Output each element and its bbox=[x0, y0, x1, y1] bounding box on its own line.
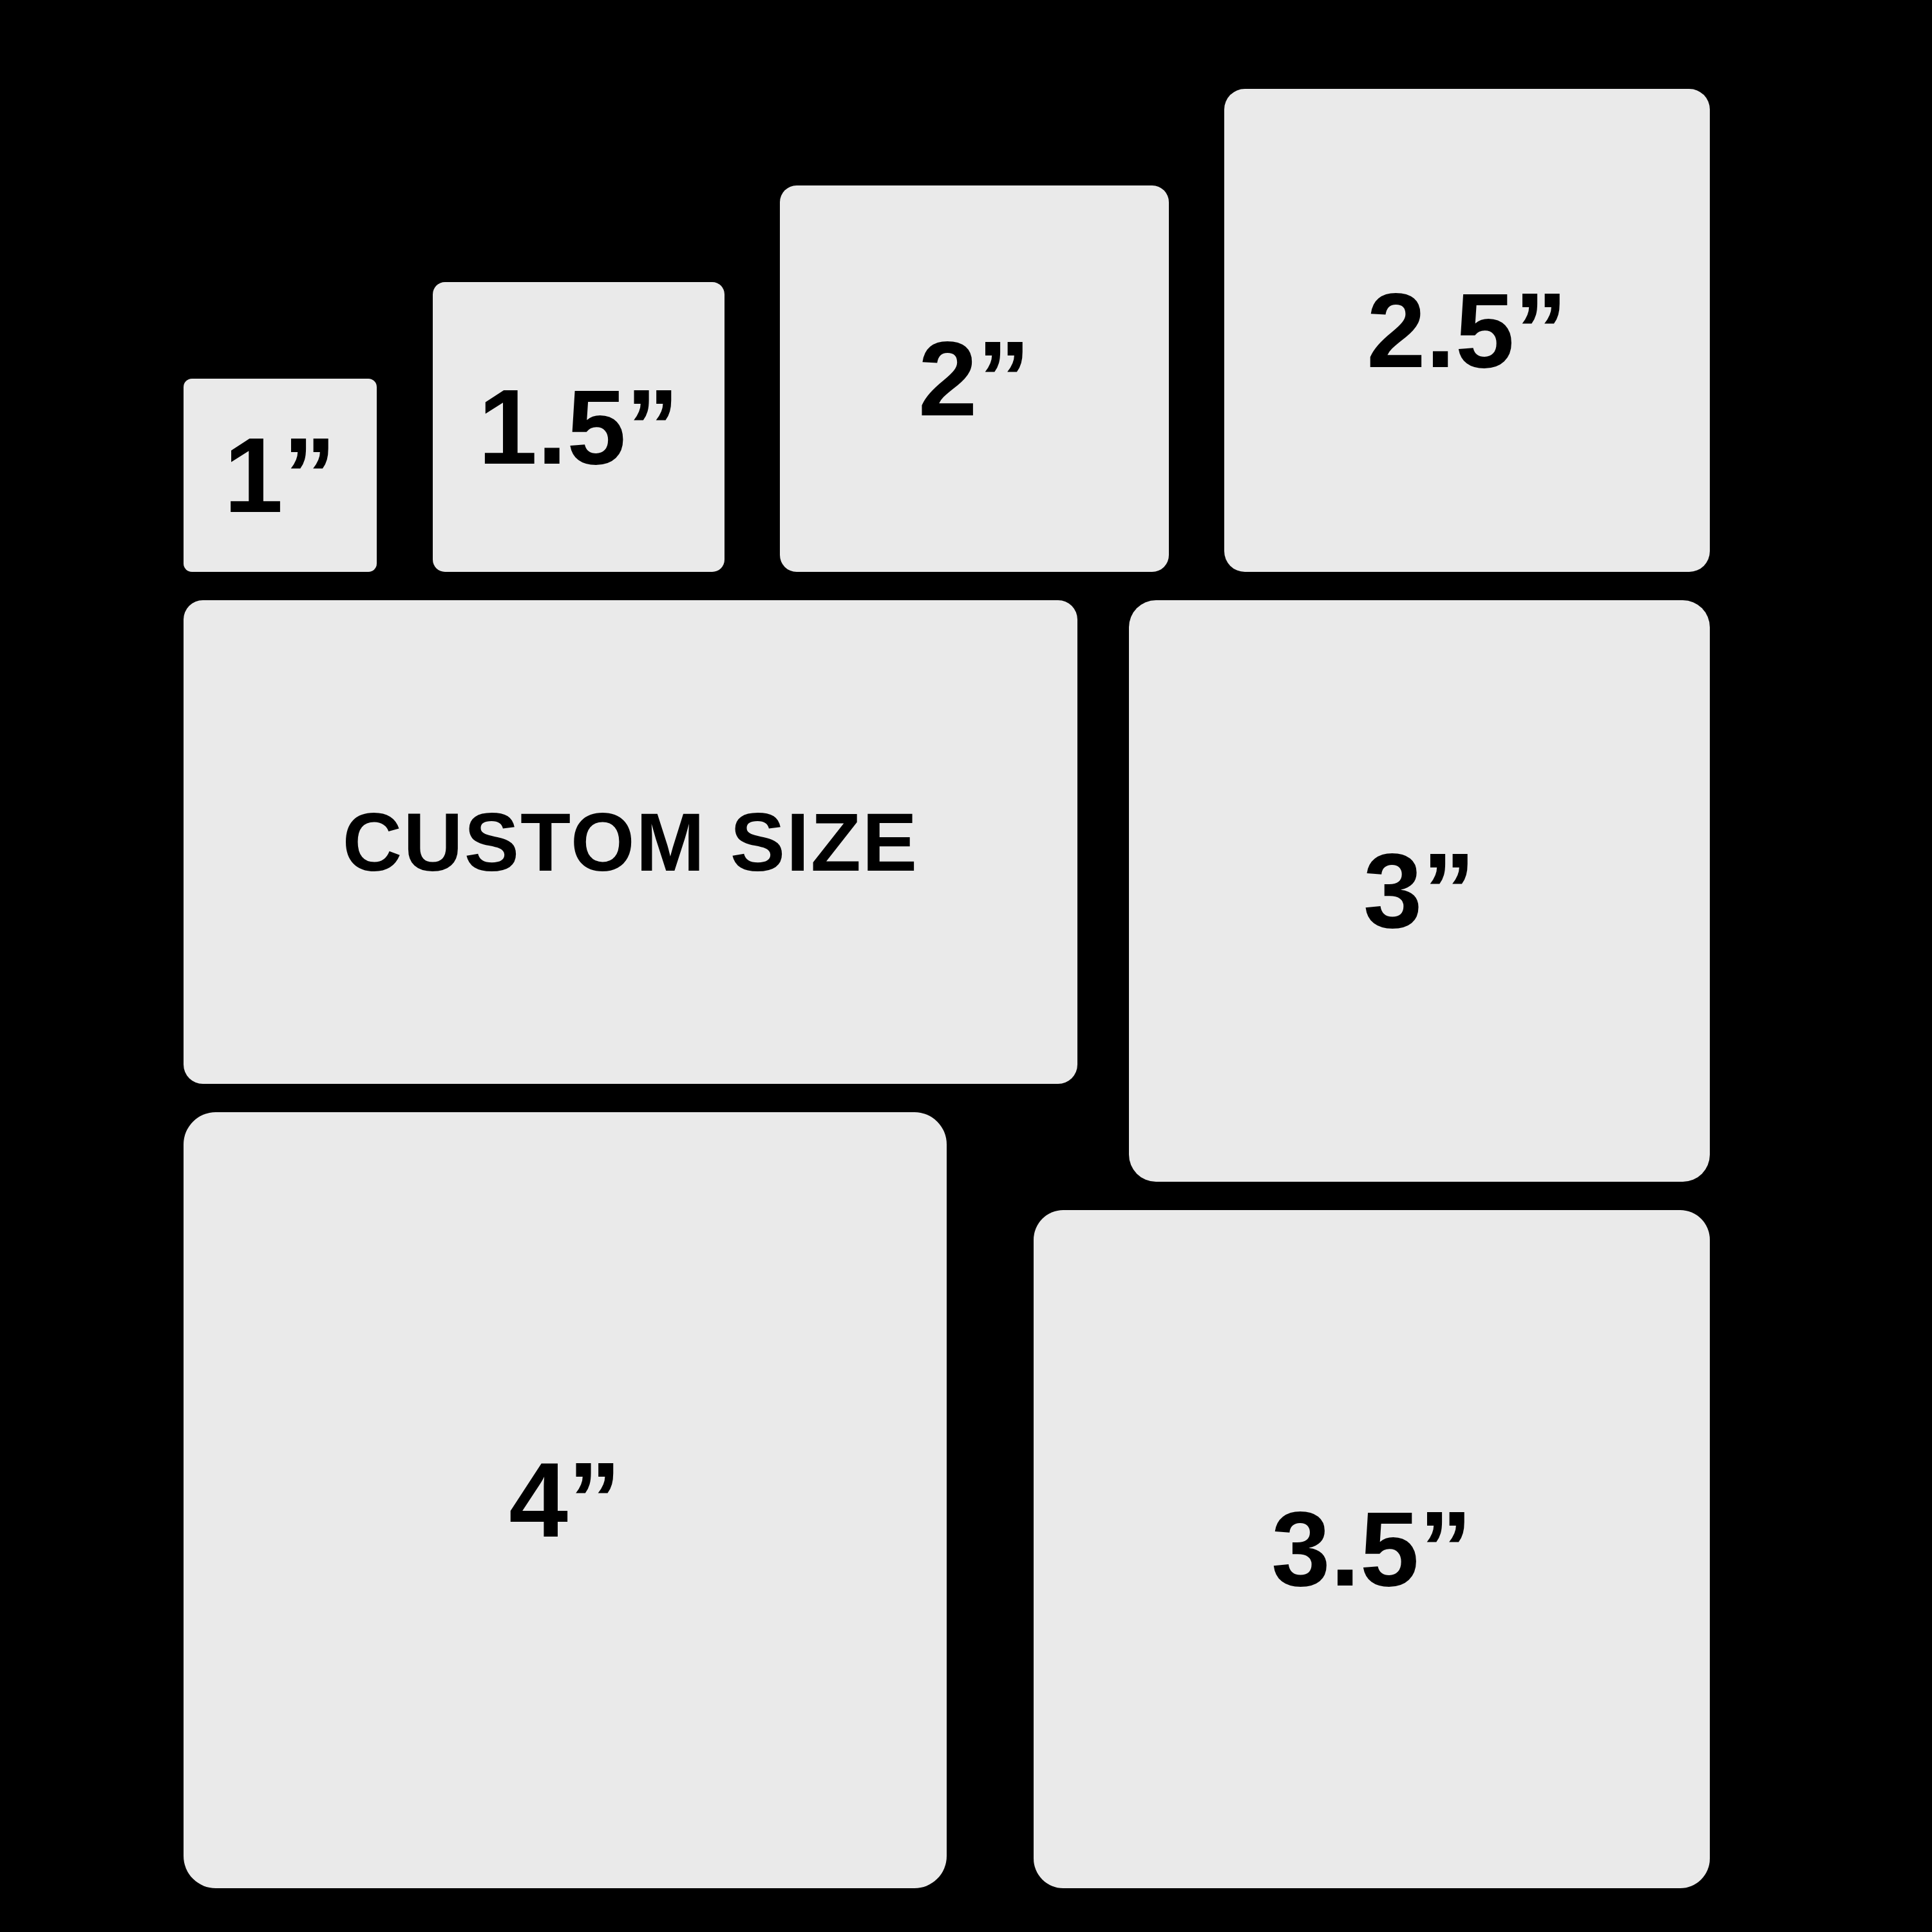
size-box-3in: 3” bbox=[1129, 600, 1710, 1182]
size-box-custom: CUSTOM SIZE bbox=[184, 600, 1077, 1084]
size-box-1-5in: 1.5” bbox=[433, 282, 724, 572]
size-label-1in: 1” bbox=[224, 422, 336, 529]
size-label-1-5in: 1.5” bbox=[478, 374, 679, 480]
size-box-1in: 1” bbox=[184, 379, 377, 572]
size-label-2-5in: 2.5” bbox=[1367, 278, 1567, 384]
size-box-3-5in: 3.5” bbox=[1034, 1210, 1710, 1888]
size-box-2in: 2” bbox=[780, 185, 1169, 572]
size-label-3-5in: 3.5” bbox=[1271, 1496, 1472, 1602]
size-label-4in: 4” bbox=[509, 1447, 621, 1553]
size-label-2in: 2” bbox=[918, 326, 1030, 432]
size-label-3in: 3” bbox=[1363, 838, 1475, 944]
size-box-2-5in: 2.5” bbox=[1224, 89, 1710, 572]
size-label-custom: CUSTOM SIZE bbox=[343, 801, 918, 884]
size-box-4in: 4” bbox=[184, 1112, 947, 1888]
size-chart-canvas: { "colors": { "background": "#000000", "… bbox=[0, 0, 1932, 1932]
